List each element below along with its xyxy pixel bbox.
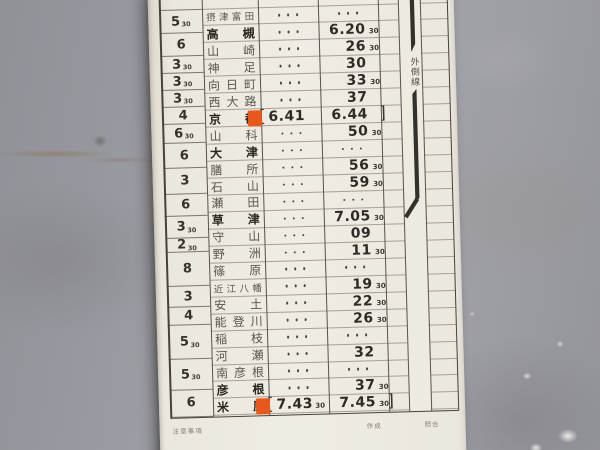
time-value: 11 [351, 242, 372, 259]
run-time-cell: 6 [160, 33, 204, 57]
run-time-minutes: 8 [183, 261, 193, 276]
run-time-seconds: 30 [190, 341, 199, 349]
time-value: 6.41 [268, 108, 305, 125]
time-value: 33 [346, 73, 367, 90]
no-stop-dots [267, 345, 327, 363]
run-time-minutes: 2 [177, 237, 187, 252]
station-name: 西大路 [204, 93, 260, 111]
station-name-char: 所 [246, 160, 258, 177]
orange-stop-marker [248, 110, 262, 126]
station-name-char: 枝 [251, 329, 263, 346]
station-name-char: 石 [211, 178, 223, 195]
time-value: 26 [345, 39, 366, 56]
no-stop-dots [262, 159, 322, 177]
arrival-time-cell [260, 74, 320, 92]
station-name: 彦根 [212, 381, 268, 399]
time-value: 26 [353, 310, 374, 327]
run-time-cell: 3 [163, 168, 207, 195]
time-value: 50 [348, 123, 369, 140]
time-value: 09 [351, 225, 372, 242]
station-name: 石山 [207, 177, 263, 195]
no-stop-dots [263, 176, 323, 194]
route-line-foot [405, 198, 417, 216]
departure-time-cell [323, 191, 383, 209]
station-name: 山科 [205, 126, 261, 144]
station-name: 瀬田 [207, 194, 263, 212]
no-stop-dots [263, 193, 323, 211]
no-stop-dots [267, 328, 327, 346]
run-time-cell: 530 [169, 359, 213, 391]
station-name: 篠原 [209, 262, 265, 280]
no-stop-dots [265, 260, 325, 278]
no-stop-dots [258, 23, 318, 41]
time-seconds: 30 [369, 44, 379, 52]
station-name: 能登川 [210, 313, 266, 331]
station-name: 摂津富田 [202, 8, 258, 26]
no-stop-dots [268, 362, 328, 380]
station-name: 向日町 [204, 76, 260, 94]
run-time-cell: 330 [160, 56, 203, 74]
no-stop-dots [259, 57, 319, 75]
run-time-cell: 330 [161, 90, 204, 108]
station-name-char: 町 [244, 75, 256, 92]
station-name-char: 槻 [242, 24, 254, 41]
station-name-char: 摂 [206, 10, 216, 24]
run-time-minutes: 6 [174, 126, 184, 141]
no-stop-dots [265, 277, 325, 295]
station-name-char: 土 [250, 295, 262, 312]
arrival-time-cell [263, 176, 323, 194]
station-name-char: 山 [207, 42, 219, 59]
departure-time-cell: 7.4530] [329, 394, 389, 412]
departure-time-cell [328, 360, 388, 378]
station-name-char: 近 [214, 281, 224, 295]
departure-time-cell: 3730 [328, 377, 388, 395]
arrival-time-cell [265, 277, 325, 295]
run-time-cell: 4 [162, 107, 205, 125]
arrival-time-cell: [6.41 [261, 108, 321, 126]
no-stop-dots [265, 243, 325, 261]
departure-time-cell: 37 [320, 89, 380, 107]
arrival-time-cell [258, 23, 318, 41]
time-value: 6.44 [331, 106, 368, 123]
station-name: 膳所 [206, 160, 262, 178]
run-time-cell: 8 [166, 252, 210, 287]
station-name-char: 河 [215, 347, 227, 364]
no-stop-dots [318, 4, 378, 22]
run-time-minutes: 5 [171, 14, 181, 29]
footer-checked-label: 照合 [424, 418, 439, 428]
station-name: 南彦根 [212, 364, 268, 382]
station-name-char: 向 [208, 76, 220, 93]
station-name-char: 登 [232, 313, 244, 330]
station-name-char: 能 [214, 313, 226, 330]
run-time-minutes: 4 [184, 308, 194, 323]
departure-time-cell: 32 [327, 343, 387, 361]
station-name-char: 津 [248, 211, 260, 228]
no-stop-dots [262, 142, 322, 160]
no-stop-dots [261, 125, 321, 143]
arrival-time-cell [264, 226, 324, 244]
station-name-char: 根 [252, 363, 264, 380]
departure-time-cell: 5030 [321, 123, 381, 141]
run-time-cell: 330 [165, 216, 209, 239]
orange-stop-marker [256, 398, 270, 414]
no-stop-dots [264, 209, 324, 227]
time-seconds: 30 [376, 282, 386, 290]
departure-time-cell: 5930 [323, 174, 383, 192]
time-value: 37 [355, 378, 376, 395]
station-name-char: 科 [245, 126, 257, 143]
photo-scene: 530633033033046306363302308345305306 15摂… [0, 0, 600, 450]
station-name-char: 西 [208, 93, 220, 110]
station-name-char: 原 [249, 262, 261, 279]
station-name: 草津 [208, 211, 264, 229]
station-name: 高槻 [202, 25, 258, 43]
timetable-table: 530633033033046306363302308345305306 15摂… [158, 0, 459, 417]
no-stop-dots [266, 311, 326, 329]
station-name: 山崎 [203, 42, 259, 60]
departure-time-cell: 5630 [322, 157, 382, 175]
arrival-time-cell: [7.4330 [269, 396, 329, 414]
time-value: 59 [349, 174, 370, 191]
station-name: 大津 [206, 143, 262, 161]
time-value: 37 [347, 89, 368, 106]
departure-time-cell: 1130 [325, 242, 385, 260]
station-name-char: 膳 [210, 161, 222, 178]
departure-time-cell: 2630 [319, 38, 379, 56]
station-name-char: 津 [246, 143, 258, 160]
arrival-time-cell [265, 243, 325, 261]
station-name-char: 田 [247, 194, 259, 211]
time-value: 7.05 [334, 208, 371, 225]
run-time-cell: 630 [162, 124, 206, 144]
arrival-time-cell [267, 328, 327, 346]
run-time-minutes: 5 [180, 334, 190, 349]
run-time-cell: 6 [170, 390, 214, 418]
departure-time-cell: 7.0530 [324, 208, 384, 226]
station-name-char: 守 [212, 229, 224, 246]
run-time-minutes: 6 [180, 148, 190, 163]
run-time-minutes: 6 [176, 37, 186, 52]
no-stop-dots [260, 91, 320, 109]
run-time-minutes: 5 [181, 367, 191, 382]
departure-time-cell: 2230 [326, 293, 386, 311]
station-name-char: 篠 [213, 263, 225, 280]
time-value: 30 [346, 56, 367, 73]
station-name: 河瀬 [211, 347, 267, 365]
timetable-card: 530633033033046306363302308345305306 15摂… [147, 0, 466, 450]
departure-time-cell: 3330 [320, 72, 380, 90]
run-time-seconds: 30 [183, 80, 192, 88]
arrival-time-cell [258, 6, 318, 24]
arrival-time-cell [266, 294, 326, 312]
run-time-cell: 3 [167, 286, 211, 308]
arrival-time-cell [262, 159, 322, 177]
station-name-char: 高 [206, 25, 218, 42]
arrival-time-cell [266, 311, 326, 329]
footer-notes-label: 注意事項 [173, 425, 203, 436]
station-name: 野洲 [209, 245, 265, 263]
station-name-char: 彦 [234, 364, 246, 381]
run-time-seconds: 30 [185, 132, 194, 140]
station-name-char: 洲 [249, 245, 261, 262]
no-stop-dots [260, 74, 320, 92]
time-value: 7.45 [339, 395, 376, 412]
arrival-time-cell [263, 193, 323, 211]
time-seconds: 30 [374, 214, 384, 222]
station-name: 守山 [208, 228, 264, 246]
station-name-char: 山 [247, 177, 259, 194]
time-seconds: 30 [377, 315, 387, 323]
station-name-char: 川 [250, 312, 262, 329]
station-name-char: 米 [217, 398, 229, 415]
run-time-minutes: 3 [172, 57, 182, 72]
station-name-char: 路 [244, 92, 256, 109]
station-name-char: 日 [226, 76, 238, 93]
time-seconds: 30 [379, 383, 389, 391]
run-time-cell: 6 [163, 143, 207, 169]
card-footer: 注意事項 作成 照合 [170, 415, 459, 439]
run-time-minutes: 3 [173, 91, 183, 106]
station-name-char: 山 [209, 127, 221, 144]
station-name-char: 稲 [215, 330, 227, 347]
station-name-char: 富 [232, 9, 242, 23]
run-time-cell: 6 [164, 194, 208, 217]
run-time-cell: 530 [159, 10, 203, 34]
station-name-char: 安 [214, 296, 226, 313]
station-name: 安土 [210, 296, 266, 314]
time-value: 6.20 [329, 22, 366, 39]
arrival-time-cell [264, 209, 324, 227]
departure-time-cell: 6.44] [321, 106, 381, 124]
station-name-char: 南 [216, 364, 228, 381]
no-stop-dots [322, 140, 382, 158]
time-seconds: 30 [369, 27, 379, 35]
station-name-char: 瀬 [251, 346, 263, 363]
no-stop-dots [266, 294, 326, 312]
departure-time-cell: 2630 [326, 309, 386, 327]
station-name-char: 京 [209, 110, 221, 127]
departure-time-cell: 30 [319, 55, 379, 73]
run-time-minutes: 6 [186, 395, 196, 410]
run-time-seconds: 30 [188, 244, 197, 252]
station-name: 近江八幡 [210, 279, 266, 297]
departure-time-cell [327, 326, 387, 344]
station-name-char: 江 [226, 281, 236, 295]
time-value: 19 [352, 276, 373, 293]
arrival-time-cell [268, 362, 328, 380]
station-name-char: 崎 [243, 41, 255, 58]
time-value: 32 [354, 344, 375, 361]
no-stop-dots [327, 326, 387, 344]
no-stop-dots [325, 259, 385, 277]
time-value: 56 [349, 157, 370, 174]
station-name: 神足 [203, 59, 259, 77]
departure-time-cell [325, 259, 385, 277]
time-seconds: 30 [373, 163, 383, 171]
footer-created-label: 作成 [366, 420, 381, 430]
run-time-cell: 4 [167, 307, 210, 326]
arrival-time-cell [260, 91, 320, 109]
station-name-char: 瀬 [211, 195, 223, 212]
time-seconds: 30 [315, 402, 325, 410]
arrival-time-cell [268, 379, 328, 397]
run-time-seconds: 30 [187, 226, 196, 234]
station-name-char: 根 [252, 380, 264, 397]
station-name-char: 彦 [216, 381, 228, 398]
no-stop-dots [268, 379, 328, 397]
no-stop-dots [259, 40, 319, 58]
departure-time-cell: 1930 [325, 276, 385, 294]
station-name-char: 幡 [252, 280, 262, 294]
station-name-char: 大 [210, 144, 222, 161]
run-time-minutes: 3 [180, 173, 190, 188]
run-time-seconds: 30 [183, 63, 192, 71]
route-line-lower-segment [412, 88, 419, 202]
station-name-char: 山 [248, 228, 260, 245]
departure-time-cell [322, 140, 382, 158]
departure-time-cell: 6.2030 [318, 21, 378, 39]
run-time-minutes: 3 [172, 74, 182, 89]
arrival-time-cell [259, 57, 319, 75]
track-label: 外側線 [406, 56, 421, 90]
station-name-char: 神 [207, 59, 219, 76]
run-time-seconds: 30 [184, 97, 193, 105]
time-seconds: 30 [372, 129, 382, 137]
time-seconds: 30 [376, 298, 386, 306]
station-name-char: 草 [212, 212, 224, 229]
station-name-char: 田 [244, 9, 254, 23]
time-seconds: 30 [375, 248, 385, 256]
run-time-cell: 530 [168, 325, 212, 360]
arrival-time-cell [267, 345, 327, 363]
departure-time-cell: 09 [324, 225, 384, 243]
time-value: 15 [344, 0, 365, 4]
no-stop-dots [328, 360, 388, 378]
time-seconds: 30 [370, 78, 380, 86]
no-stop-dots [323, 191, 383, 209]
arrival-time-cell [259, 40, 319, 58]
station-name-char: 足 [243, 58, 255, 75]
run-time-minutes: 3 [183, 289, 193, 304]
run-time-seconds: 30 [191, 373, 200, 381]
station-name-char: 大 [226, 93, 238, 110]
arrival-time-cell [262, 142, 322, 160]
arrival-time-cell [265, 260, 325, 278]
arrival-time-cell [261, 125, 321, 143]
station-name-char: 津 [219, 10, 229, 24]
station-name-char: 野 [213, 246, 225, 263]
run-time-cell: 230 [165, 238, 208, 253]
time-seconds: 30 [373, 180, 383, 188]
no-stop-dots [258, 6, 318, 24]
station-name-char: 八 [239, 280, 249, 294]
run-time-minutes: 3 [177, 219, 187, 234]
run-time-cell: 330 [161, 73, 204, 91]
route-line-upper-segment [409, 0, 415, 52]
no-stop-dots [264, 226, 324, 244]
station-name: 稲枝 [211, 330, 267, 348]
time-value: 22 [352, 293, 373, 310]
time-value: 7.43 [276, 396, 313, 413]
departure-time-cell [318, 4, 378, 22]
run-time-minutes: 6 [181, 197, 191, 212]
run-time-minutes: 4 [178, 108, 188, 123]
run-time-seconds: 30 [181, 20, 190, 28]
